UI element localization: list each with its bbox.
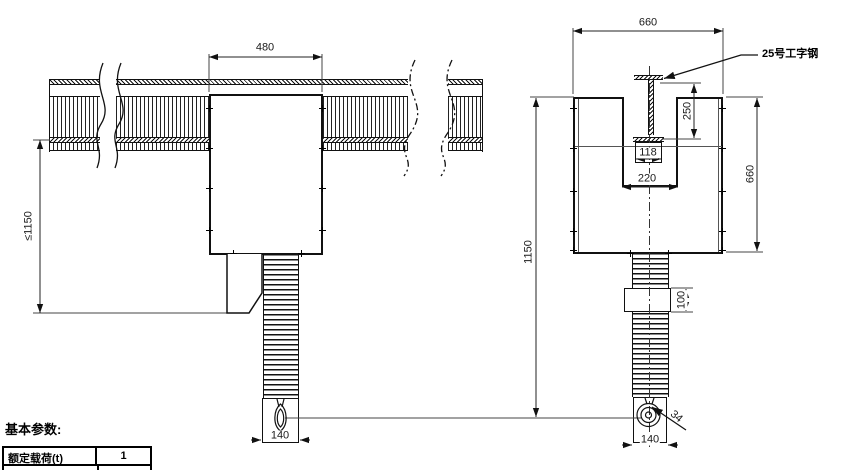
param-value: 1 [97, 448, 150, 464]
parameters-table: 额定载荷(t) 1 [2, 446, 152, 470]
screw-rod-front [263, 254, 299, 398]
side-bracket [227, 254, 262, 313]
notch-bottom-edge [622, 185, 678, 187]
rivet-marker [570, 145, 577, 152]
rivet-marker [570, 228, 577, 235]
rivet-marker [719, 247, 726, 254]
beam-band-segment [49, 137, 100, 143]
rivet-marker [719, 145, 726, 152]
rail-hatch-segment [49, 79, 100, 85]
beam-band-segment [323, 137, 408, 143]
dim-max-1150: ≤1150 [24, 210, 35, 242]
rivet-marker [570, 247, 577, 254]
rivet-marker [719, 188, 726, 195]
dim-660-side: 660 [746, 164, 757, 184]
dim-118: 118 [638, 148, 658, 159]
parameters-title: 基本参数: [5, 419, 61, 438]
beam-end-cap [49, 79, 50, 152]
dim-140-side: 140 [640, 435, 660, 446]
rivet-marker [627, 250, 634, 257]
frame-inner-vertical [578, 99, 579, 252]
rivet-marker [206, 227, 213, 234]
hoist-body-front [209, 94, 323, 255]
dim-220: 220 [637, 174, 657, 185]
rivet-marker [665, 250, 672, 257]
rivet-marker [206, 105, 213, 112]
rivet-marker [230, 250, 237, 257]
rivet-marker [319, 145, 326, 152]
rivet-marker [319, 185, 326, 192]
param-label: 额定载荷(t) [4, 448, 97, 464]
frame-bottom-edge [573, 252, 723, 254]
ibeam-web [648, 80, 654, 135]
frame-top-left-edge [573, 97, 622, 99]
dim-34: 34 [667, 408, 685, 426]
engineering-drawing-canvas: 480 660 250 118 220 660 1150 ≤1150 100 3… [0, 0, 843, 470]
rivet-marker [570, 105, 577, 112]
dim-250: 250 [683, 101, 694, 121]
rivet-marker [298, 250, 305, 257]
dim-480: 480 [255, 43, 275, 54]
rivet-marker [319, 227, 326, 234]
table-row: 额定载荷(t) 1 [4, 448, 150, 466]
rail-hatch-segment [116, 79, 408, 85]
notch-right-edge [676, 97, 678, 187]
rail-hatch-segment [448, 79, 483, 85]
guide-nut-block [624, 288, 671, 312]
ibeam-callout: 25号工字钢 [762, 49, 818, 60]
rivet-marker [719, 105, 726, 112]
dimension-linework [0, 0, 843, 470]
table-row-cutoff [4, 466, 150, 470]
beam-band-segment [448, 137, 483, 143]
screw-rod-side [632, 253, 669, 397]
notch-left-edge [622, 97, 624, 187]
rivet-marker [570, 188, 577, 195]
dim-1150: 1150 [524, 239, 535, 265]
beam-end-cap [482, 79, 483, 152]
dim-140-front: 140 [270, 431, 290, 442]
beam-band-segment [116, 137, 209, 143]
rivet-marker [719, 228, 726, 235]
dim-660-top: 660 [638, 18, 658, 29]
rivet-marker [206, 145, 213, 152]
frame-top-right-edge [678, 97, 723, 99]
rivet-marker [206, 185, 213, 192]
rivet-marker [319, 105, 326, 112]
dim-100: 100 [677, 290, 688, 310]
